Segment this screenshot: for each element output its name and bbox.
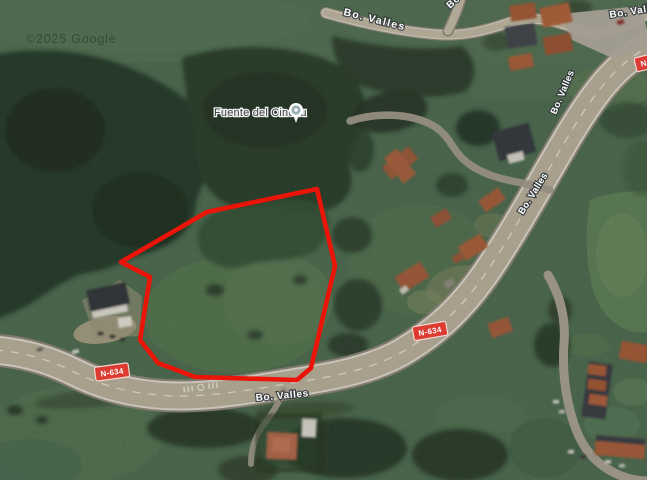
grain-overlay-light: [0, 0, 647, 480]
google-watermark: ©2025 Google: [26, 32, 116, 46]
map-canvas[interactable]: ©2025 Google Fuente del Cinchu Bo. Valle…: [0, 0, 647, 480]
satellite-map-view: ©2025 Google Fuente del Cinchu Bo. Valle…: [0, 0, 647, 480]
